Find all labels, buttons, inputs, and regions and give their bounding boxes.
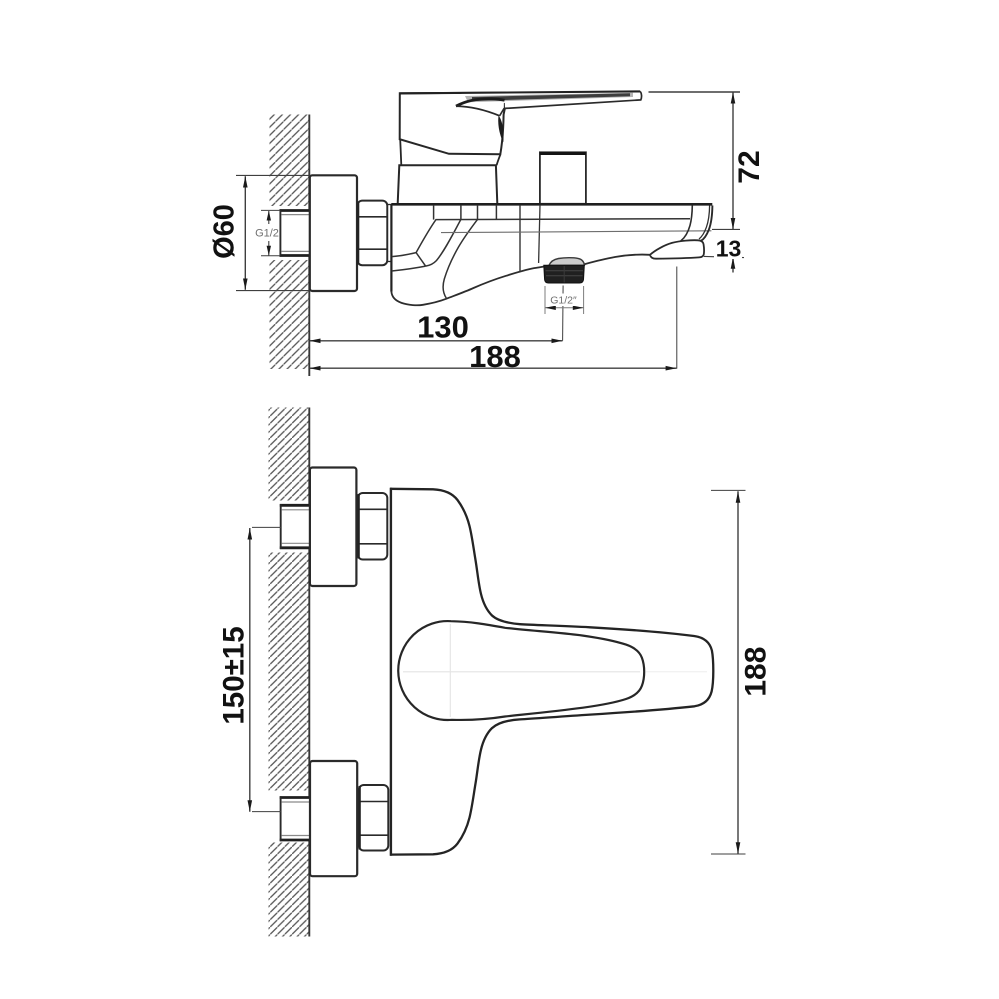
svg-text:72: 72 [733,150,766,183]
svg-text:13: 13 [716,236,742,262]
svg-text:G1/2: G1/2 [255,228,279,240]
svg-text:188: 188 [740,647,773,697]
svg-text:Ø60: Ø60 [209,204,241,259]
svg-text:130: 130 [417,310,469,345]
svg-text:150±15: 150±15 [218,626,251,724]
svg-text:188: 188 [469,339,521,374]
svg-text:G1/2″: G1/2″ [550,295,577,307]
